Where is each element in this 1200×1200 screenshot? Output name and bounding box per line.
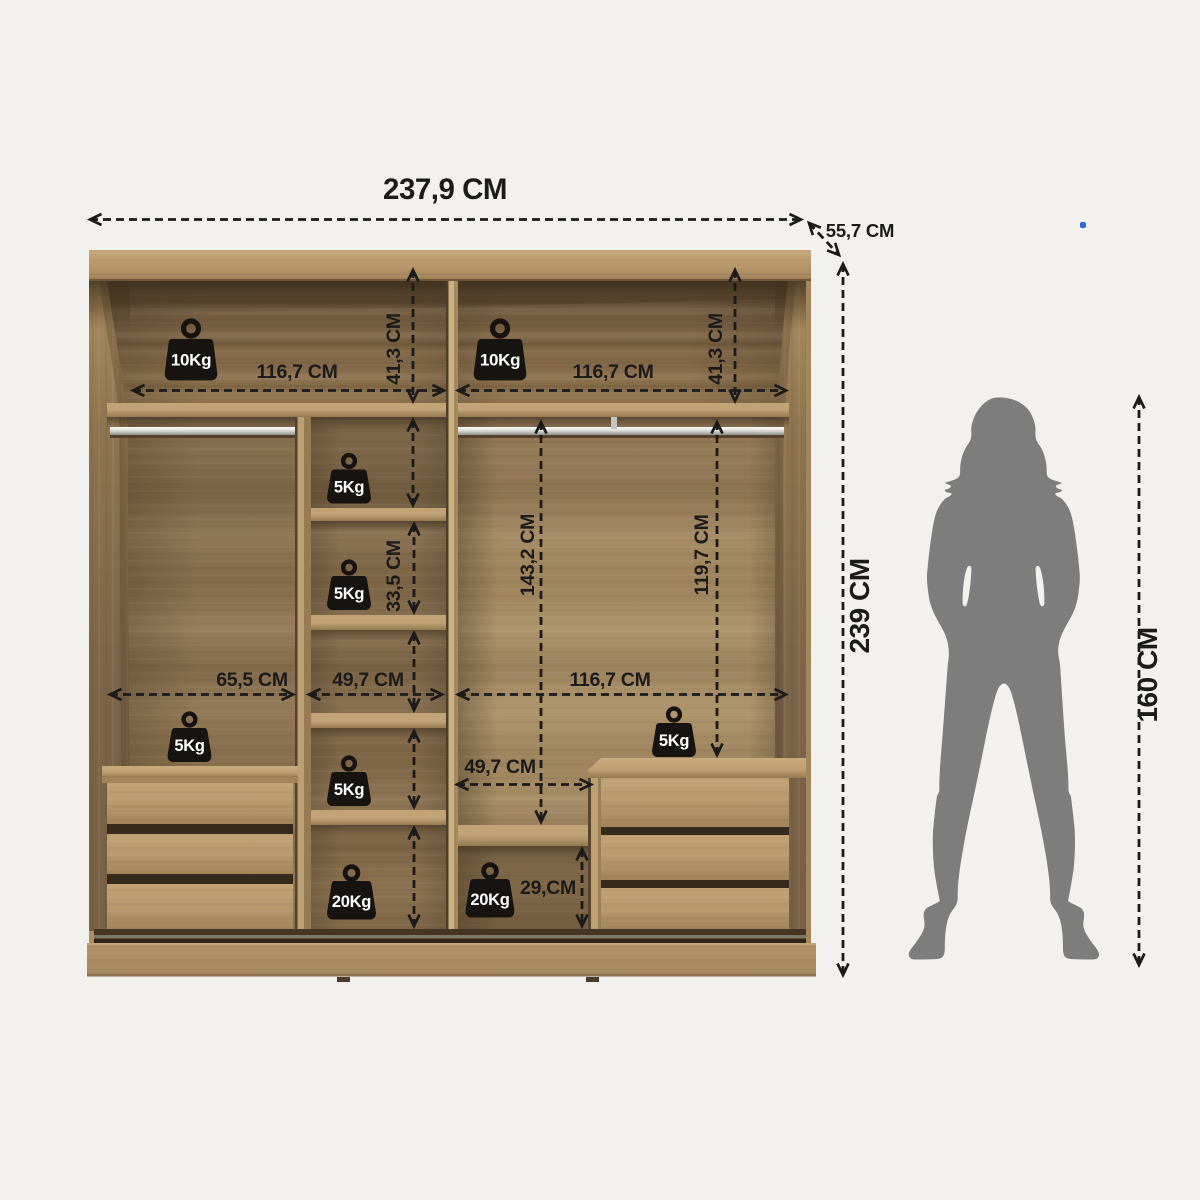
svg-text:5Kg: 5Kg xyxy=(174,737,204,755)
svg-text:116,7 CM: 116,7 CM xyxy=(569,669,650,691)
svg-text:29,CM: 29,CM xyxy=(520,877,576,899)
svg-text:143,2 CM: 143,2 CM xyxy=(517,514,539,596)
svg-text:20Kg: 20Kg xyxy=(332,893,371,911)
svg-text:119,7 CM: 119,7 CM xyxy=(691,514,713,595)
svg-text:49,7 CM: 49,7 CM xyxy=(464,756,536,778)
svg-text:5Kg: 5Kg xyxy=(334,479,364,497)
svg-text:160 CM: 160 CM xyxy=(1132,627,1163,722)
svg-text:41,3 CM: 41,3 CM xyxy=(705,313,727,385)
svg-text:41,3 CM: 41,3 CM xyxy=(383,313,405,385)
svg-text:239 CM: 239 CM xyxy=(844,558,875,653)
svg-text:237,9 CM: 237,9 CM xyxy=(383,173,507,206)
svg-text:5Kg: 5Kg xyxy=(334,585,364,603)
svg-text:5Kg: 5Kg xyxy=(659,732,689,750)
svg-text:10Kg: 10Kg xyxy=(171,351,211,370)
svg-text:33,5 CM: 33,5 CM xyxy=(383,540,405,612)
svg-text:55,7 CM: 55,7 CM xyxy=(826,220,895,241)
svg-text:116,7 CM: 116,7 CM xyxy=(572,361,653,383)
svg-text:116,7 CM: 116,7 CM xyxy=(256,361,337,383)
svg-text:5Kg: 5Kg xyxy=(334,781,364,799)
svg-text:10Kg: 10Kg xyxy=(480,351,520,370)
svg-text:20Kg: 20Kg xyxy=(470,891,509,909)
svg-text:65,5 CM: 65,5 CM xyxy=(216,669,288,691)
svg-text:49,7 CM: 49,7 CM xyxy=(332,669,404,691)
